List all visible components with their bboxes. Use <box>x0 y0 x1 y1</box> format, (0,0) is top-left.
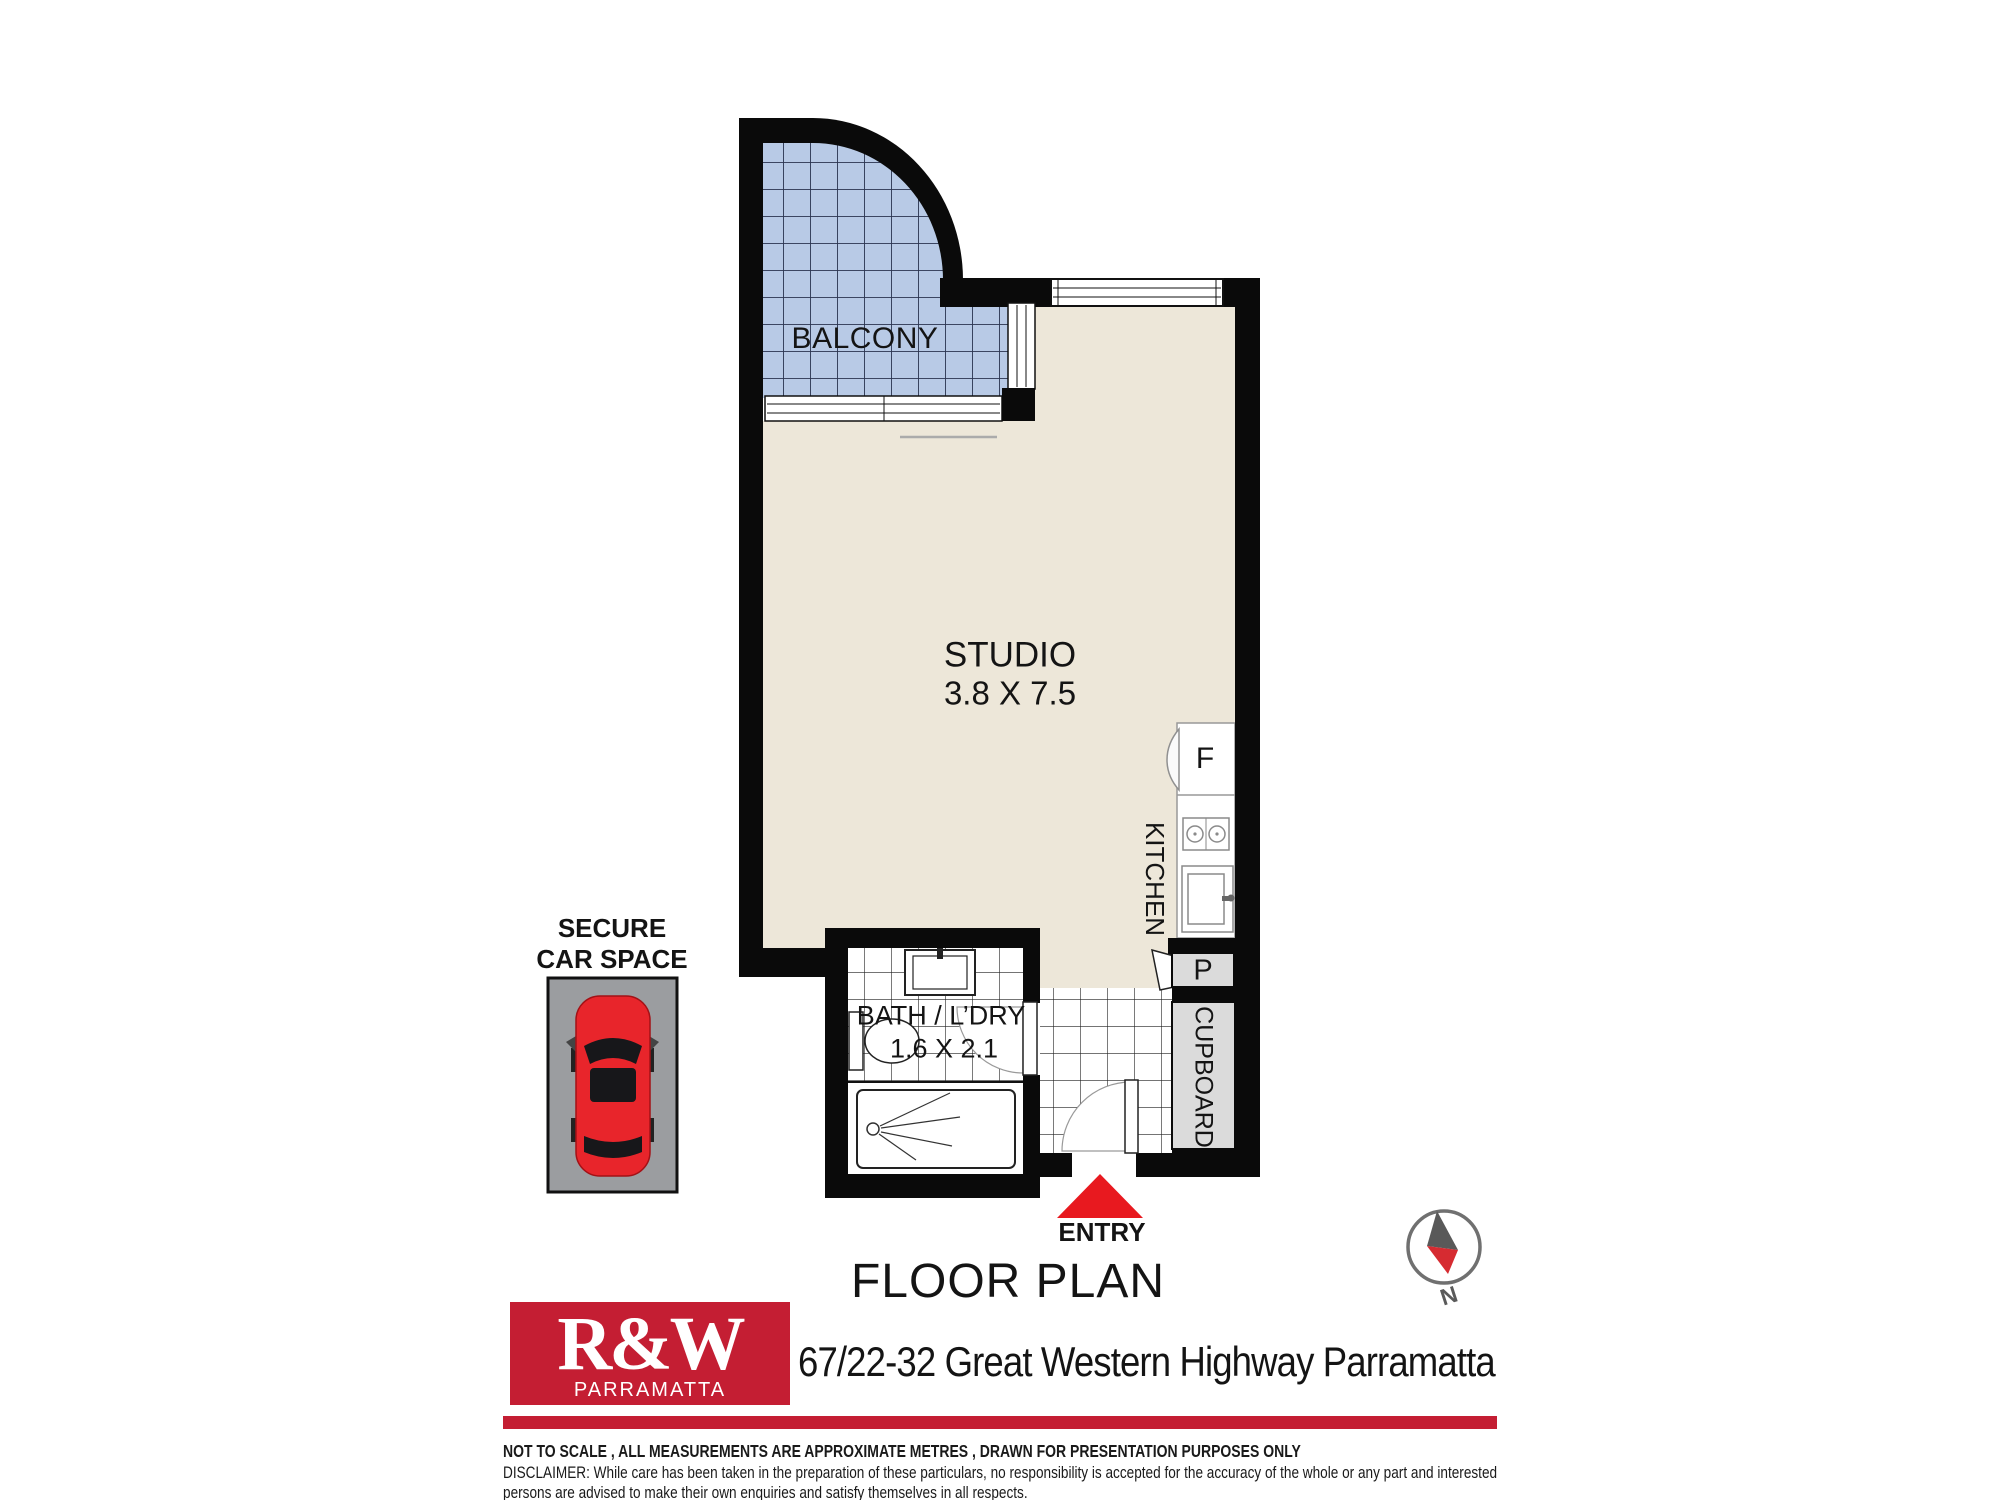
sink-icon <box>1182 866 1235 932</box>
studio-dimensions: 3.8 X 7.5 <box>944 677 1076 710</box>
bath-laundry-dimensions: 1.6 X 2.1 <box>890 1036 998 1063</box>
balcony-sliding-door <box>765 396 1002 421</box>
kitchen-label: KITCHEN <box>1142 822 1168 936</box>
page-title: FLOOR PLAN <box>851 1258 1165 1306</box>
agency-logo-subtext: PARRAMATTA <box>574 1380 726 1400</box>
balcony-label: BALCONY <box>792 324 939 354</box>
car-space-label-line1: SECURE <box>558 915 666 941</box>
car-icon <box>566 996 659 1176</box>
balcony-side-window <box>1008 303 1035 389</box>
entry-arrow-icon <box>1057 1174 1143 1218</box>
cupboard-label: CUPBOARD <box>1191 1006 1216 1148</box>
stove-icon <box>1183 818 1229 850</box>
disclaimer-line2: DISCLAIMER: While care has been taken in… <box>503 1463 1497 1483</box>
wall-stub <box>1002 388 1035 421</box>
pantry-label: P <box>1193 957 1212 986</box>
car-space <box>548 978 677 1192</box>
entry-label: ENTRY <box>1058 1219 1145 1245</box>
disclaimer-line1: NOT TO SCALE , ALL MEASUREMENTS ARE APPR… <box>503 1441 1301 1462</box>
disclaimer-line3: persons are advised to make their own en… <box>503 1483 1028 1500</box>
bath-laundry-label: BATH / L’DRY <box>857 1003 1026 1030</box>
property-address: 67/22-32 Great Western Highway Parramatt… <box>798 1338 1495 1386</box>
floor-plan-page: BALCONY STUDIO 3.8 X 7.5 KITCHEN F P CUP… <box>0 0 2000 1500</box>
fridge-label: F <box>1196 744 1214 774</box>
vanity-sink-icon <box>905 948 975 995</box>
studio-top-window <box>1051 279 1223 306</box>
balcony <box>739 118 1012 398</box>
car-space-label-line2: CAR SPACE <box>536 946 687 972</box>
bathtub-icon <box>857 1090 1015 1168</box>
entry-hall <box>1040 988 1172 1178</box>
divider-line <box>503 1416 1497 1429</box>
agency-logo-text: R&W <box>557 1306 742 1382</box>
studio-label: STUDIO <box>944 638 1076 673</box>
compass-icon <box>1408 1211 1480 1283</box>
